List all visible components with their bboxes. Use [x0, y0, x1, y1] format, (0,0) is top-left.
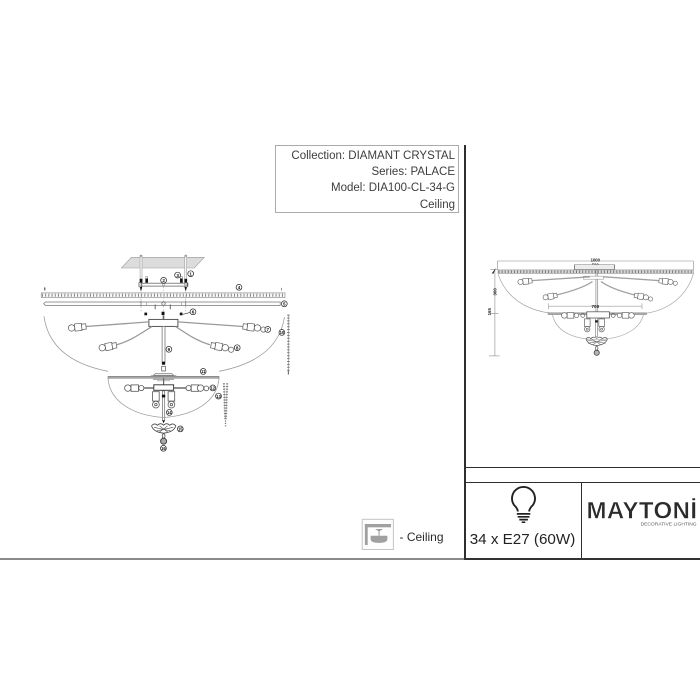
svg-text:2: 2 [162, 278, 165, 283]
svg-text:300: 300 [493, 288, 498, 296]
svg-text:13: 13 [216, 394, 221, 399]
svg-text:15: 15 [178, 427, 183, 432]
svg-text:165: 165 [487, 308, 492, 316]
svg-text:10: 10 [280, 330, 285, 335]
svg-text:700: 700 [591, 304, 599, 309]
svg-text:9: 9 [168, 347, 171, 352]
svg-text:12: 12 [210, 386, 215, 391]
svg-text:16: 16 [161, 446, 166, 451]
svg-text:14: 14 [167, 410, 172, 415]
svg-text:1: 1 [189, 271, 192, 276]
svg-text:4: 4 [238, 285, 241, 290]
svg-text:3: 3 [176, 273, 179, 278]
svg-text:11: 11 [201, 369, 206, 374]
svg-text:DECORATIVE LIGHTING: DECORATIVE LIGHTING [641, 521, 698, 526]
svg-text:8: 8 [236, 345, 239, 350]
svg-text:7: 7 [267, 327, 270, 332]
svg-text:6: 6 [192, 310, 195, 315]
svg-text:5: 5 [283, 302, 286, 307]
